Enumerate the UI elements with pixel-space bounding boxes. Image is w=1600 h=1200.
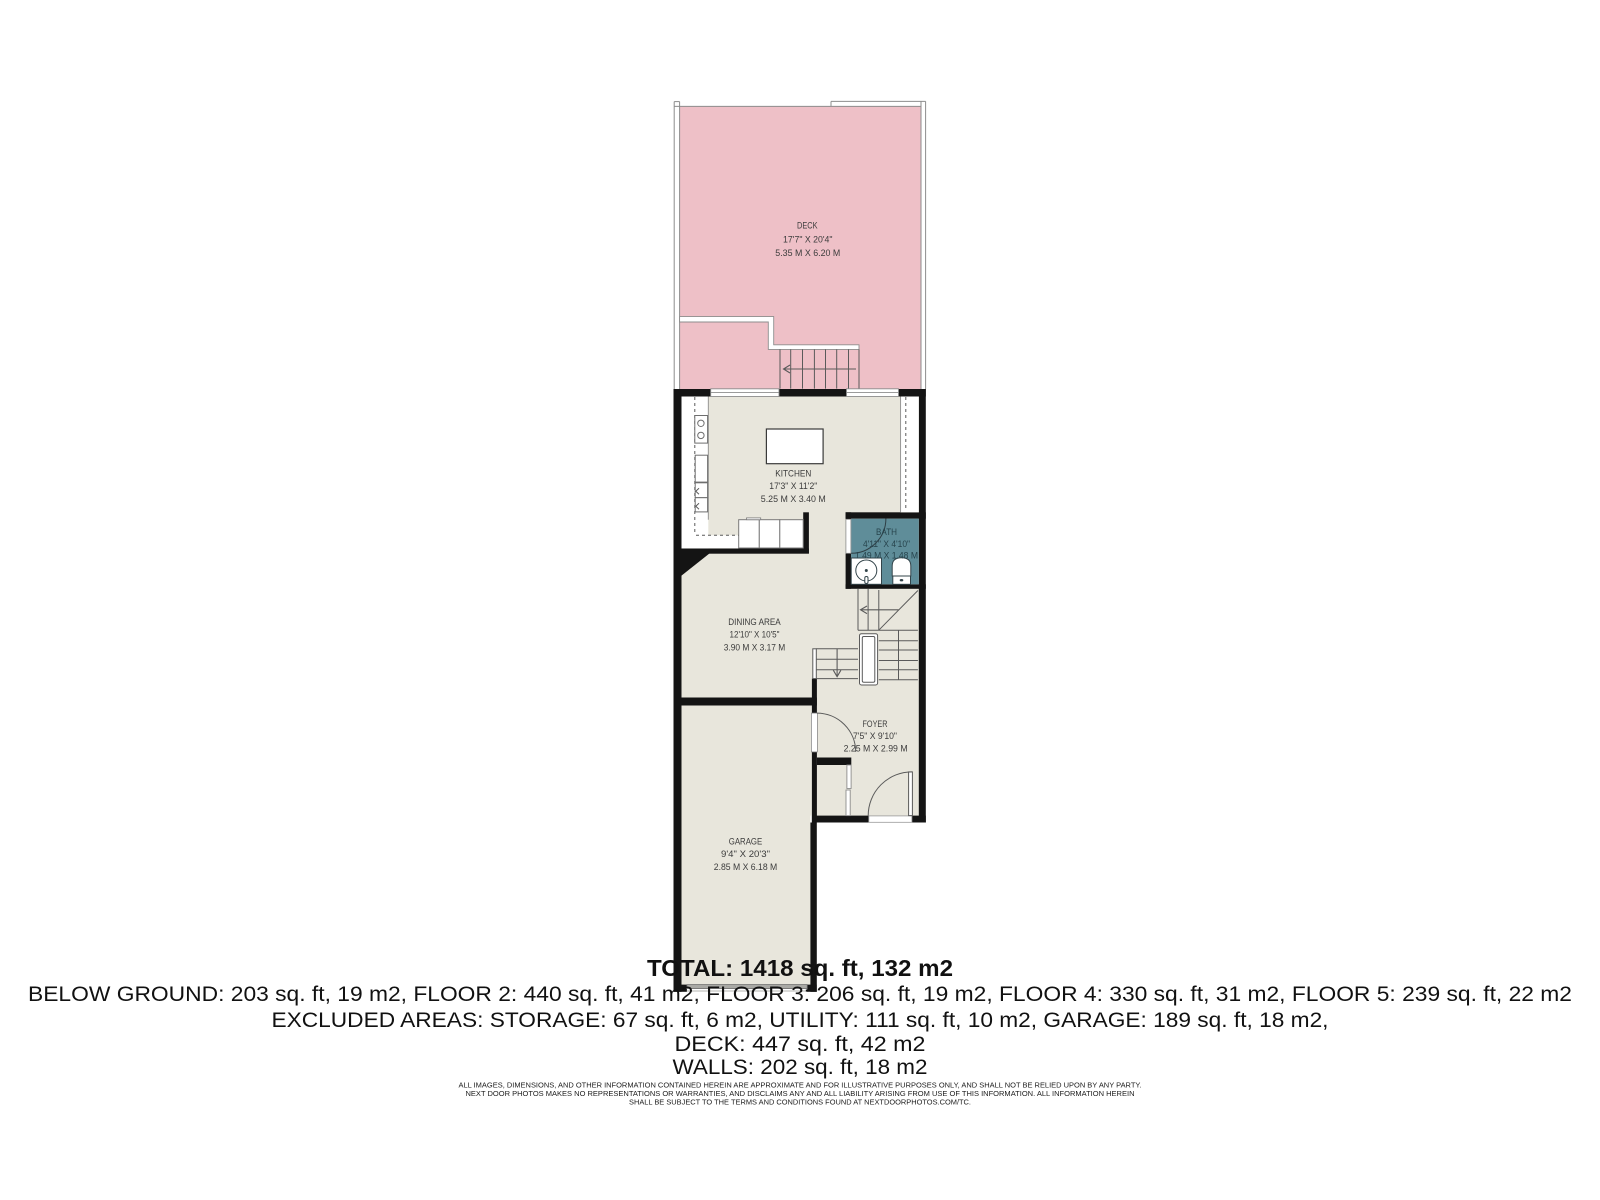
svg-text:SHALL BE SUBJECT TO THE TERMS: SHALL BE SUBJECT TO THE TERMS AND CONDIT… <box>629 1098 971 1107</box>
svg-text:WALLS: 202 sq. ft, 18 m2: WALLS: 202 sq. ft, 18 m2 <box>673 1055 928 1079</box>
svg-text:5.25 M X 3.40 M: 5.25 M X 3.40 M <box>761 494 826 505</box>
svg-text:BATH: BATH <box>876 527 897 538</box>
svg-text:3.90 M X 3.17 M: 3.90 M X 3.17 M <box>724 642 786 653</box>
svg-text:FOYER: FOYER <box>863 719 888 730</box>
svg-text:GARAGE: GARAGE <box>729 837 763 848</box>
svg-text:KITCHEN: KITCHEN <box>775 469 811 480</box>
svg-text:7'5" X 9'10": 7'5" X 9'10" <box>853 731 897 742</box>
svg-text:4'11" X 4'10": 4'11" X 4'10" <box>863 539 910 550</box>
svg-text:9'4" X 20'3": 9'4" X 20'3" <box>721 849 770 860</box>
svg-text:12'10" X 10'5": 12'10" X 10'5" <box>730 630 780 641</box>
svg-text:2.85 M X 6.18 M: 2.85 M X 6.18 M <box>714 862 778 873</box>
svg-text:2.25 M X 2.99 M: 2.25 M X 2.99 M <box>844 743 908 754</box>
svg-text:EXCLUDED AREAS: STORAGE: 67 sq: EXCLUDED AREAS: STORAGE: 67 sq. ft, 6 m2… <box>272 1008 1329 1032</box>
svg-text:17'3" X 11'2": 17'3" X 11'2" <box>769 481 817 492</box>
svg-text:DINING AREA: DINING AREA <box>728 617 781 628</box>
svg-text:5.35 M X 6.20 M: 5.35 M X 6.20 M <box>775 248 840 259</box>
svg-text:DECK: 447 sq. ft, 42 m2: DECK: 447 sq. ft, 42 m2 <box>675 1032 926 1056</box>
svg-text:1.49 M X 1.48 M: 1.49 M X 1.48 M <box>855 551 918 562</box>
svg-text:BELOW GROUND: 203 sq. ft, 19 m: BELOW GROUND: 203 sq. ft, 19 m2, FLOOR 2… <box>28 982 1572 1006</box>
svg-text:17'7" X 20'4": 17'7" X 20'4" <box>783 235 833 246</box>
svg-text:TOTAL: 1418 sq. ft, 132 m2: TOTAL: 1418 sq. ft, 132 m2 <box>647 955 953 981</box>
svg-text:DECK: DECK <box>797 221 818 232</box>
